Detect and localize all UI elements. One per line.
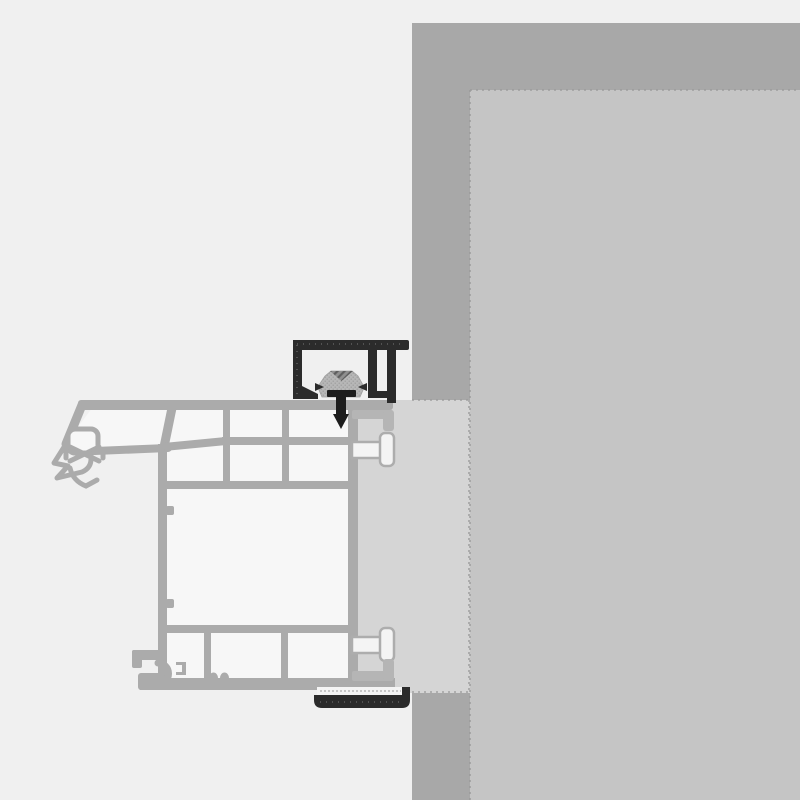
- web-upper-2: [282, 410, 289, 488]
- screw-shaft: [336, 397, 346, 415]
- gasket-rail: [95, 448, 168, 451]
- fin-bottom-cap: [383, 659, 394, 681]
- web-lower-1: [204, 633, 211, 678]
- hook-arm-cap: [132, 650, 142, 668]
- installation-cross-section: [0, 0, 800, 800]
- technical-drawing-canvas: [0, 0, 800, 800]
- screw-channel-nut: [327, 390, 356, 397]
- wall-nub-1: [166, 506, 174, 515]
- wall-section: [356, 23, 800, 800]
- web-upper-1: [223, 410, 230, 488]
- bracket-right-leg: [387, 348, 396, 403]
- web-lower-2: [281, 633, 288, 678]
- notch-hole: [176, 665, 182, 672]
- anchor-dowel-top-head: [380, 433, 394, 466]
- rail3: [158, 625, 353, 633]
- bracket-mid-leg: [368, 348, 377, 398]
- wall-nub-2: [166, 599, 174, 608]
- fin-top-cap: [383, 410, 394, 431]
- bottom-channel-assembly: [314, 687, 410, 708]
- rail2: [160, 481, 353, 489]
- wall-reveal-surface: [470, 90, 800, 800]
- anchor-dowel-bottom-head: [380, 628, 394, 661]
